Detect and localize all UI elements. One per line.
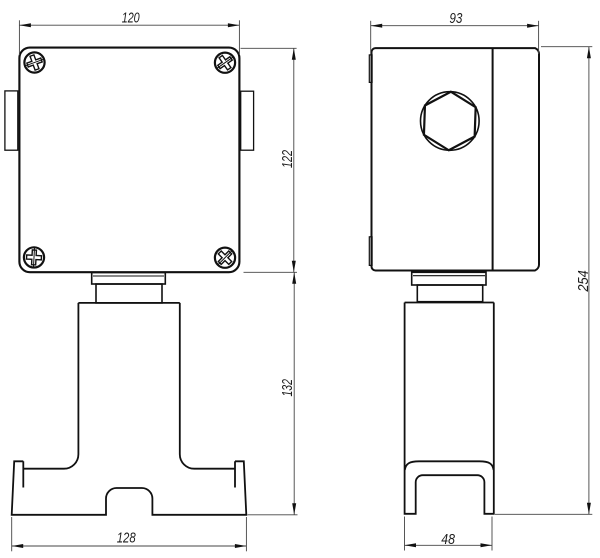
svg-text:132: 132: [280, 379, 296, 397]
svg-text:254: 254: [575, 270, 592, 292]
svg-text:93: 93: [449, 11, 462, 27]
svg-text:122: 122: [280, 150, 296, 168]
svg-text:120: 120: [122, 10, 140, 26]
svg-text:48: 48: [441, 532, 455, 548]
svg-text:128: 128: [117, 531, 136, 547]
